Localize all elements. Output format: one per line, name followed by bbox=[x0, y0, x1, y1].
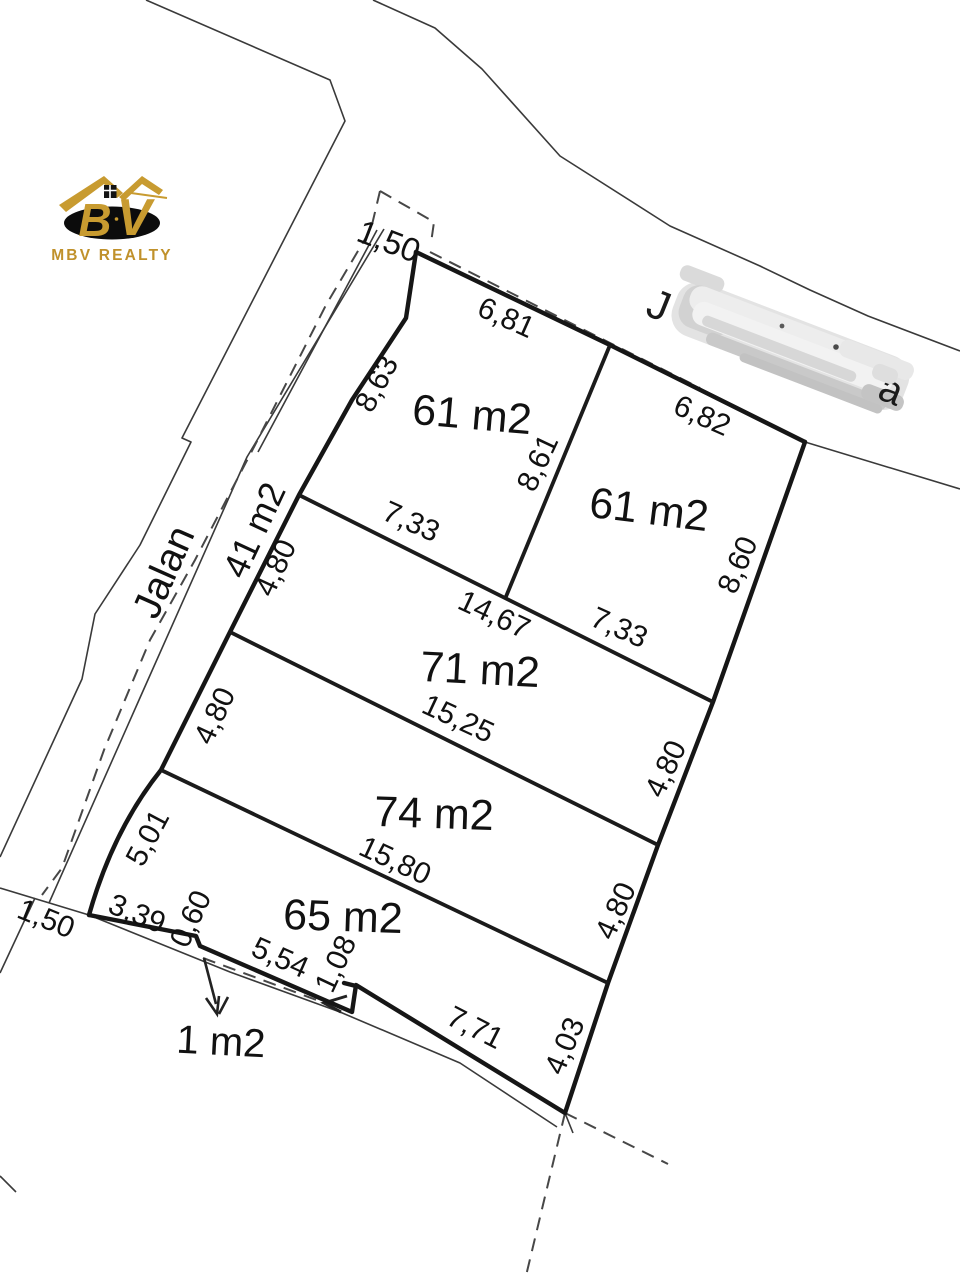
svg-text:74 m2: 74 m2 bbox=[373, 788, 494, 840]
svg-text:MBV REALTY: MBV REALTY bbox=[51, 247, 173, 264]
svg-text:1 m2: 1 m2 bbox=[175, 1018, 266, 1067]
svg-text:V: V bbox=[117, 189, 156, 247]
svg-text:B: B bbox=[78, 194, 111, 246]
svg-text:65 m2: 65 m2 bbox=[282, 891, 403, 943]
svg-text:71 m2: 71 m2 bbox=[419, 643, 541, 697]
